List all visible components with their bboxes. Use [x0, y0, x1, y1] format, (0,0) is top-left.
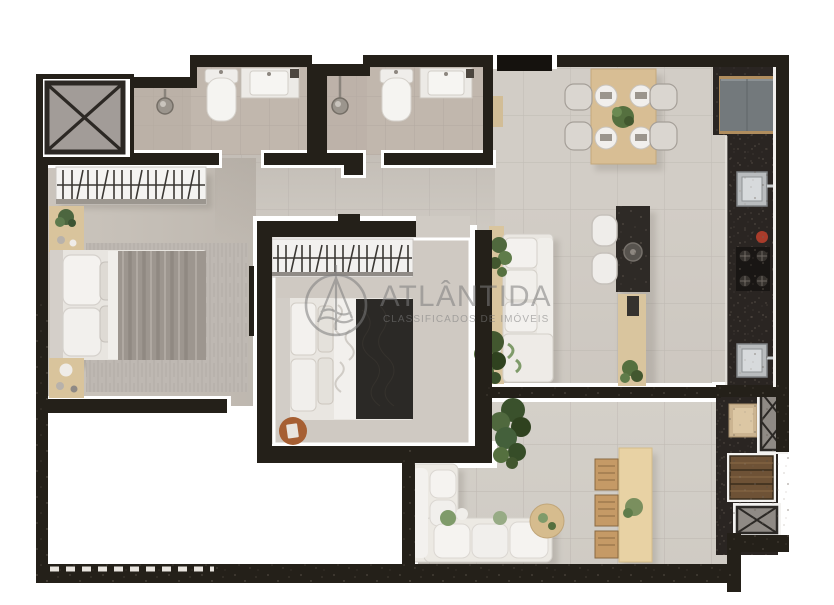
svg-text:CLASSIFICADOS DE IMÓVEIS: CLASSIFICADOS DE IMÓVEIS — [383, 312, 549, 325]
svg-text:ATLÂNTIDA: ATLÂNTIDA — [380, 280, 552, 313]
